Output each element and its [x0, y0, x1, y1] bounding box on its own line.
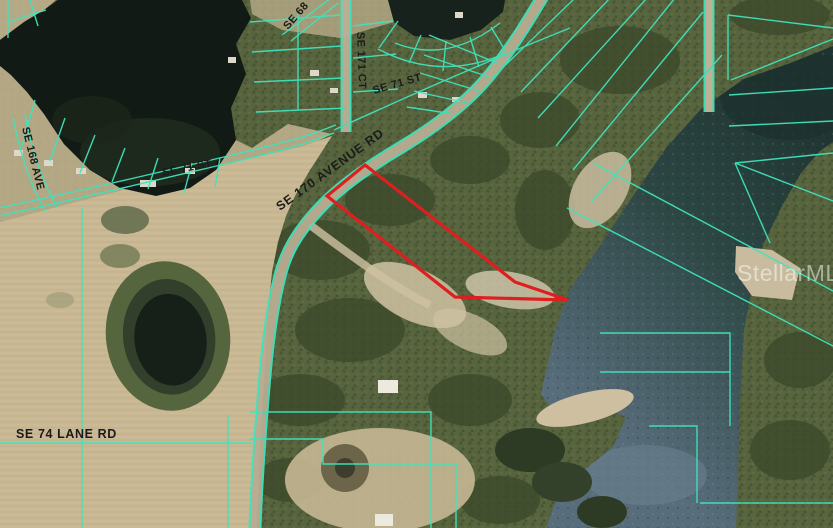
watermark-stellar-mls: StellarMLS [737, 260, 833, 286]
map-canvas[interactable]: SE 170 AVENUE RD SE 74 LANE RD SE 71 ST … [0, 0, 833, 528]
label-se-74-lane-rd: SE 74 LANE RD [16, 427, 117, 441]
aerial-map[interactable]: SE 170 AVENUE RD SE 74 LANE RD SE 71 ST … [0, 0, 833, 528]
label-se-171-ct: SE 171 CT [354, 32, 368, 90]
